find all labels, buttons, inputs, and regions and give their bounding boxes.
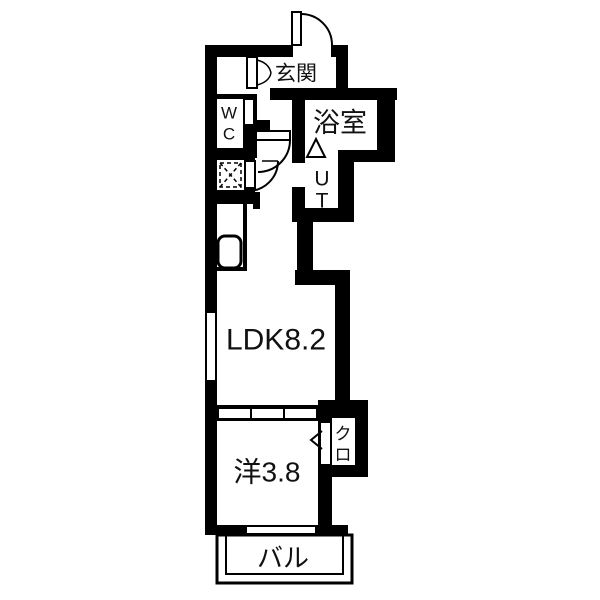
wc-label-line1: W <box>221 104 237 123</box>
closet-label-line2: ロ <box>335 446 352 465</box>
wall-bath-right <box>377 96 395 156</box>
genkan-label: 玄関 <box>275 63 317 86</box>
bath-label: 浴室 <box>313 108 367 138</box>
entrance-door-leaf <box>292 12 301 45</box>
partition-sliding-band <box>219 409 316 418</box>
window-bottom-upper-line <box>247 525 315 527</box>
wall-wc-bottom <box>205 148 257 158</box>
wall-counter-nub <box>253 204 260 209</box>
ut-label-line2: T <box>316 190 329 213</box>
wall-hall-right <box>292 96 305 222</box>
ut-door-opening <box>292 163 305 187</box>
sliding-door-divider-1 <box>250 409 252 418</box>
wall-right-narrow <box>297 222 313 274</box>
floor-plan-canvas: 玄関 W C 浴室 U T LDK8.2 洋3.8 ク ロ バル <box>0 0 600 600</box>
wc-door-jamb <box>244 99 254 125</box>
wc-label-line2: C <box>223 125 235 144</box>
ldk-label: LDK8.2 <box>226 324 326 357</box>
wall-ldk-right <box>335 283 350 405</box>
hall-door-leaf <box>256 131 290 140</box>
wall-top-left <box>205 45 293 57</box>
kitchen-counter-edge <box>243 204 247 270</box>
wall-ps-bottom <box>205 192 260 204</box>
sliding-door-divider-2 <box>283 409 285 418</box>
window-left-outer-line <box>205 313 207 380</box>
wall-genkan-right <box>336 45 348 92</box>
kitchen-door-jamb <box>245 161 255 188</box>
wall-right-step <box>295 270 350 285</box>
kitchen-sink <box>218 236 241 268</box>
ut-label-line1: U <box>314 168 329 191</box>
wall-hall-nub <box>253 120 270 131</box>
western-room-label: 洋3.8 <box>234 457 301 488</box>
wall-left-lower <box>205 380 217 535</box>
floor-plan: 玄関 W C 浴室 U T LDK8.2 洋3.8 ク ロ バル <box>0 0 600 600</box>
genkan-door-jamb <box>247 57 257 88</box>
window-left-inner-line <box>215 313 217 380</box>
closet-label-line1: ク <box>335 425 352 444</box>
balcony-label: バル <box>257 543 309 573</box>
closet-door-leaf <box>320 422 331 465</box>
